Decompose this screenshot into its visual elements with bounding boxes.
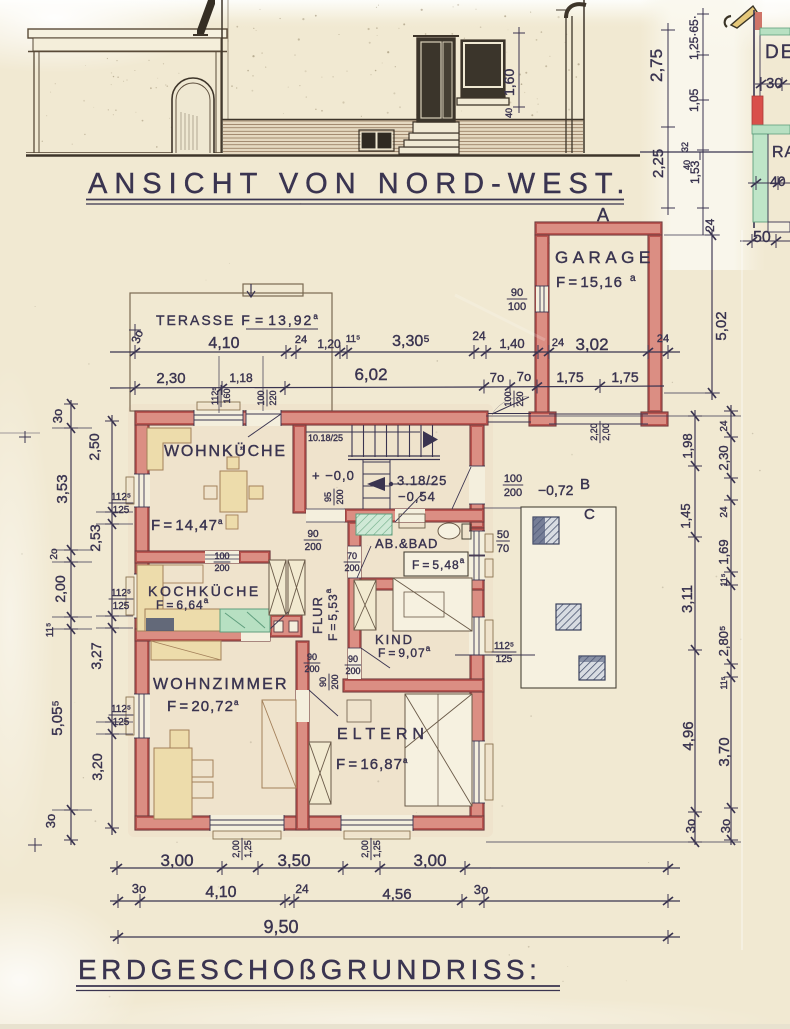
svg-text:1,25: 1,25 — [372, 840, 382, 858]
svg-text:200: 200 — [330, 674, 340, 689]
svg-text:−0,72: −0,72 — [538, 482, 574, 498]
svg-text:24: 24 — [552, 337, 564, 349]
svg-text:11⁵: 11⁵ — [346, 334, 361, 345]
svg-text:160: 160 — [222, 388, 232, 403]
svg-text:100: 100 — [214, 551, 229, 561]
svg-text:ELTERN: ELTERN — [337, 726, 429, 743]
svg-text:100: 100 — [256, 390, 266, 405]
svg-text:1,75: 1,75 — [556, 369, 583, 385]
svg-text:70: 70 — [347, 551, 357, 561]
svg-text:1,60: 1,60 — [501, 69, 517, 96]
svg-text:3o: 3o — [718, 819, 733, 833]
svg-text:1,18: 1,18 — [229, 371, 253, 385]
svg-text:GARAGE: GARAGE — [555, 248, 655, 267]
svg-text:KIND: KIND — [375, 632, 414, 647]
svg-text:125: 125 — [113, 601, 130, 612]
svg-text:3o: 3o — [132, 881, 146, 896]
svg-text:9,50: 9,50 — [263, 917, 298, 937]
svg-text:1,98: 1,98 — [680, 433, 695, 458]
svg-text:11⁵: 11⁵ — [45, 623, 56, 638]
svg-text:2,30: 2,30 — [716, 445, 731, 470]
svg-text:2,00: 2,00 — [601, 423, 611, 441]
svg-text:1,69: 1,69 — [716, 539, 731, 564]
svg-text:3,11: 3,11 — [679, 585, 696, 613]
svg-text:DE: DE — [765, 42, 790, 63]
svg-text:RA: RA — [772, 144, 790, 161]
svg-text:1,75: 1,75 — [611, 369, 638, 385]
svg-text:3,50: 3,50 — [277, 851, 310, 870]
svg-text:24: 24 — [719, 420, 730, 432]
svg-text:2,20: 2,20 — [589, 423, 599, 441]
svg-text:100: 100 — [508, 301, 526, 313]
svg-text:F = 15,16: F = 15,16 — [556, 274, 623, 291]
svg-text:F = 14,47a: F = 14,47a — [151, 517, 223, 534]
svg-text:3,20: 3,20 — [89, 753, 105, 780]
svg-text:4,96: 4,96 — [680, 721, 697, 750]
svg-text:2,30: 2,30 — [156, 370, 185, 387]
svg-text:32: 32 — [680, 142, 690, 152]
svg-text:24: 24 — [703, 218, 717, 232]
svg-text:F = 9,07a: F = 9,07a — [378, 644, 431, 660]
svg-text:200: 200 — [344, 563, 359, 573]
svg-text:2,75: 2,75 — [647, 49, 666, 82]
svg-text:C: C — [584, 506, 595, 523]
svg-text:WOHNZIMMER: WOHNZIMMER — [153, 676, 289, 693]
svg-text:24: 24 — [295, 334, 307, 346]
svg-text:100: 100 — [503, 391, 513, 406]
svg-text:112⁵: 112⁵ — [111, 704, 131, 715]
svg-text:200: 200 — [335, 489, 345, 504]
svg-text:2,80⁵: 2,80⁵ — [716, 626, 731, 657]
svg-text:3,70: 3,70 — [716, 737, 733, 766]
svg-text:3.18/25: 3.18/25 — [397, 473, 447, 488]
svg-text:24: 24 — [657, 333, 669, 345]
svg-text:125: 125 — [113, 717, 130, 728]
svg-text:11⁵: 11⁵ — [719, 573, 729, 586]
svg-text:3o: 3o — [43, 814, 58, 828]
svg-text:70: 70 — [497, 543, 509, 555]
svg-text:50: 50 — [497, 529, 509, 541]
svg-text:7o: 7o — [490, 370, 504, 385]
svg-text:F = 20,72a: F = 20,72a — [167, 698, 239, 715]
svg-text:ANSICHT VON NORD-WEST.: ANSICHT VON NORD-WEST. — [88, 168, 631, 200]
svg-text:24: 24 — [295, 882, 309, 896]
svg-text:112⁵: 112⁵ — [494, 641, 514, 652]
svg-text:4,56: 4,56 — [382, 886, 411, 903]
svg-text:3o: 3o — [474, 882, 488, 897]
svg-text:F = 5,48a: F = 5,48a — [412, 556, 465, 572]
svg-text:1,20: 1,20 — [317, 337, 341, 351]
svg-text:−0,54: −0,54 — [398, 489, 436, 504]
svg-text:125: 125 — [496, 654, 513, 665]
svg-text:+ −0,0: + −0,0 — [312, 468, 355, 483]
svg-text:1,25: 1,25 — [243, 840, 253, 858]
svg-text:B: B — [580, 476, 590, 493]
svg-text:F = 16,87a: F = 16,87a — [336, 756, 408, 773]
svg-text:10.18/25: 10.18/25 — [308, 433, 343, 443]
svg-text:4,10: 4,10 — [208, 335, 239, 352]
svg-text:40: 40 — [504, 108, 514, 118]
svg-text:3,00: 3,00 — [160, 851, 193, 870]
svg-text:90: 90 — [307, 529, 319, 540]
svg-text:200: 200 — [214, 563, 229, 573]
svg-text:2,53: 2,53 — [87, 524, 103, 551]
svg-text:3,27: 3,27 — [88, 642, 104, 669]
svg-text:1,40: 1,40 — [499, 336, 524, 351]
svg-text:90: 90 — [348, 654, 358, 664]
svg-text:24: 24 — [719, 506, 730, 518]
svg-text:200: 200 — [345, 666, 360, 676]
svg-text:3,02: 3,02 — [575, 335, 608, 354]
svg-text:125: 125 — [113, 505, 130, 516]
svg-text:200: 200 — [304, 664, 319, 674]
svg-text:2,25: 2,25 — [650, 149, 667, 178]
svg-text:100: 100 — [504, 473, 522, 485]
svg-text:1,25·65·: 1,25·65· — [687, 15, 701, 60]
svg-text:A: A — [597, 205, 609, 225]
svg-text:a: a — [630, 273, 636, 284]
svg-text:AB.&BAD: AB.&BAD — [375, 536, 438, 551]
svg-text:11⁵: 11⁵ — [719, 676, 729, 689]
svg-text:90: 90 — [318, 677, 328, 687]
svg-text:FLUR: FLUR — [310, 596, 325, 634]
svg-text:24: 24 — [472, 329, 486, 343]
svg-text:TERASSE F = 13,92a: TERASSE F = 13,92a — [156, 312, 320, 328]
svg-text:5,02: 5,02 — [713, 311, 730, 340]
svg-text:F = 6,64a: F = 6,64a — [156, 596, 209, 612]
svg-text:1,05: 1,05 — [687, 88, 701, 112]
svg-text:4,10: 4,10 — [205, 884, 236, 901]
svg-text:200: 200 — [305, 542, 322, 553]
svg-text:95: 95 — [323, 492, 333, 502]
svg-text:220: 220 — [268, 390, 278, 405]
svg-text:200: 200 — [504, 487, 522, 499]
svg-text:1,45: 1,45 — [678, 503, 693, 528]
svg-text:F = 5,53a: F = 5,53a — [324, 588, 340, 641]
svg-text:5,05⁵: 5,05⁵ — [49, 700, 66, 735]
svg-text:220: 220 — [515, 391, 525, 406]
svg-text:7o: 7o — [517, 369, 531, 384]
svg-text:6,02: 6,02 — [354, 365, 387, 384]
svg-text:1,53: 1,53 — [688, 160, 702, 184]
svg-text:112⁵: 112⁵ — [210, 387, 220, 405]
svg-text:90: 90 — [307, 652, 317, 662]
svg-text:3,30⁵: 3,30⁵ — [392, 333, 430, 350]
svg-text:3o: 3o — [50, 409, 65, 423]
svg-text:2,00: 2,00 — [360, 840, 370, 858]
svg-text:2,00: 2,00 — [52, 575, 68, 602]
svg-text:ERDGESCHOßGRUNDRISS:: ERDGESCHOßGRUNDRISS: — [78, 954, 541, 985]
svg-text:3o: 3o — [683, 819, 698, 833]
svg-text:2,50: 2,50 — [86, 433, 102, 460]
svg-text:WOHNKÜCHE: WOHNKÜCHE — [164, 442, 287, 460]
svg-text:3,53: 3,53 — [54, 474, 71, 503]
svg-text:3,00: 3,00 — [413, 851, 446, 870]
svg-text:2,00: 2,00 — [231, 840, 241, 858]
svg-text:112⁵: 112⁵ — [111, 492, 131, 503]
svg-text:112⁵: 112⁵ — [111, 588, 131, 599]
svg-text:90: 90 — [511, 287, 523, 299]
